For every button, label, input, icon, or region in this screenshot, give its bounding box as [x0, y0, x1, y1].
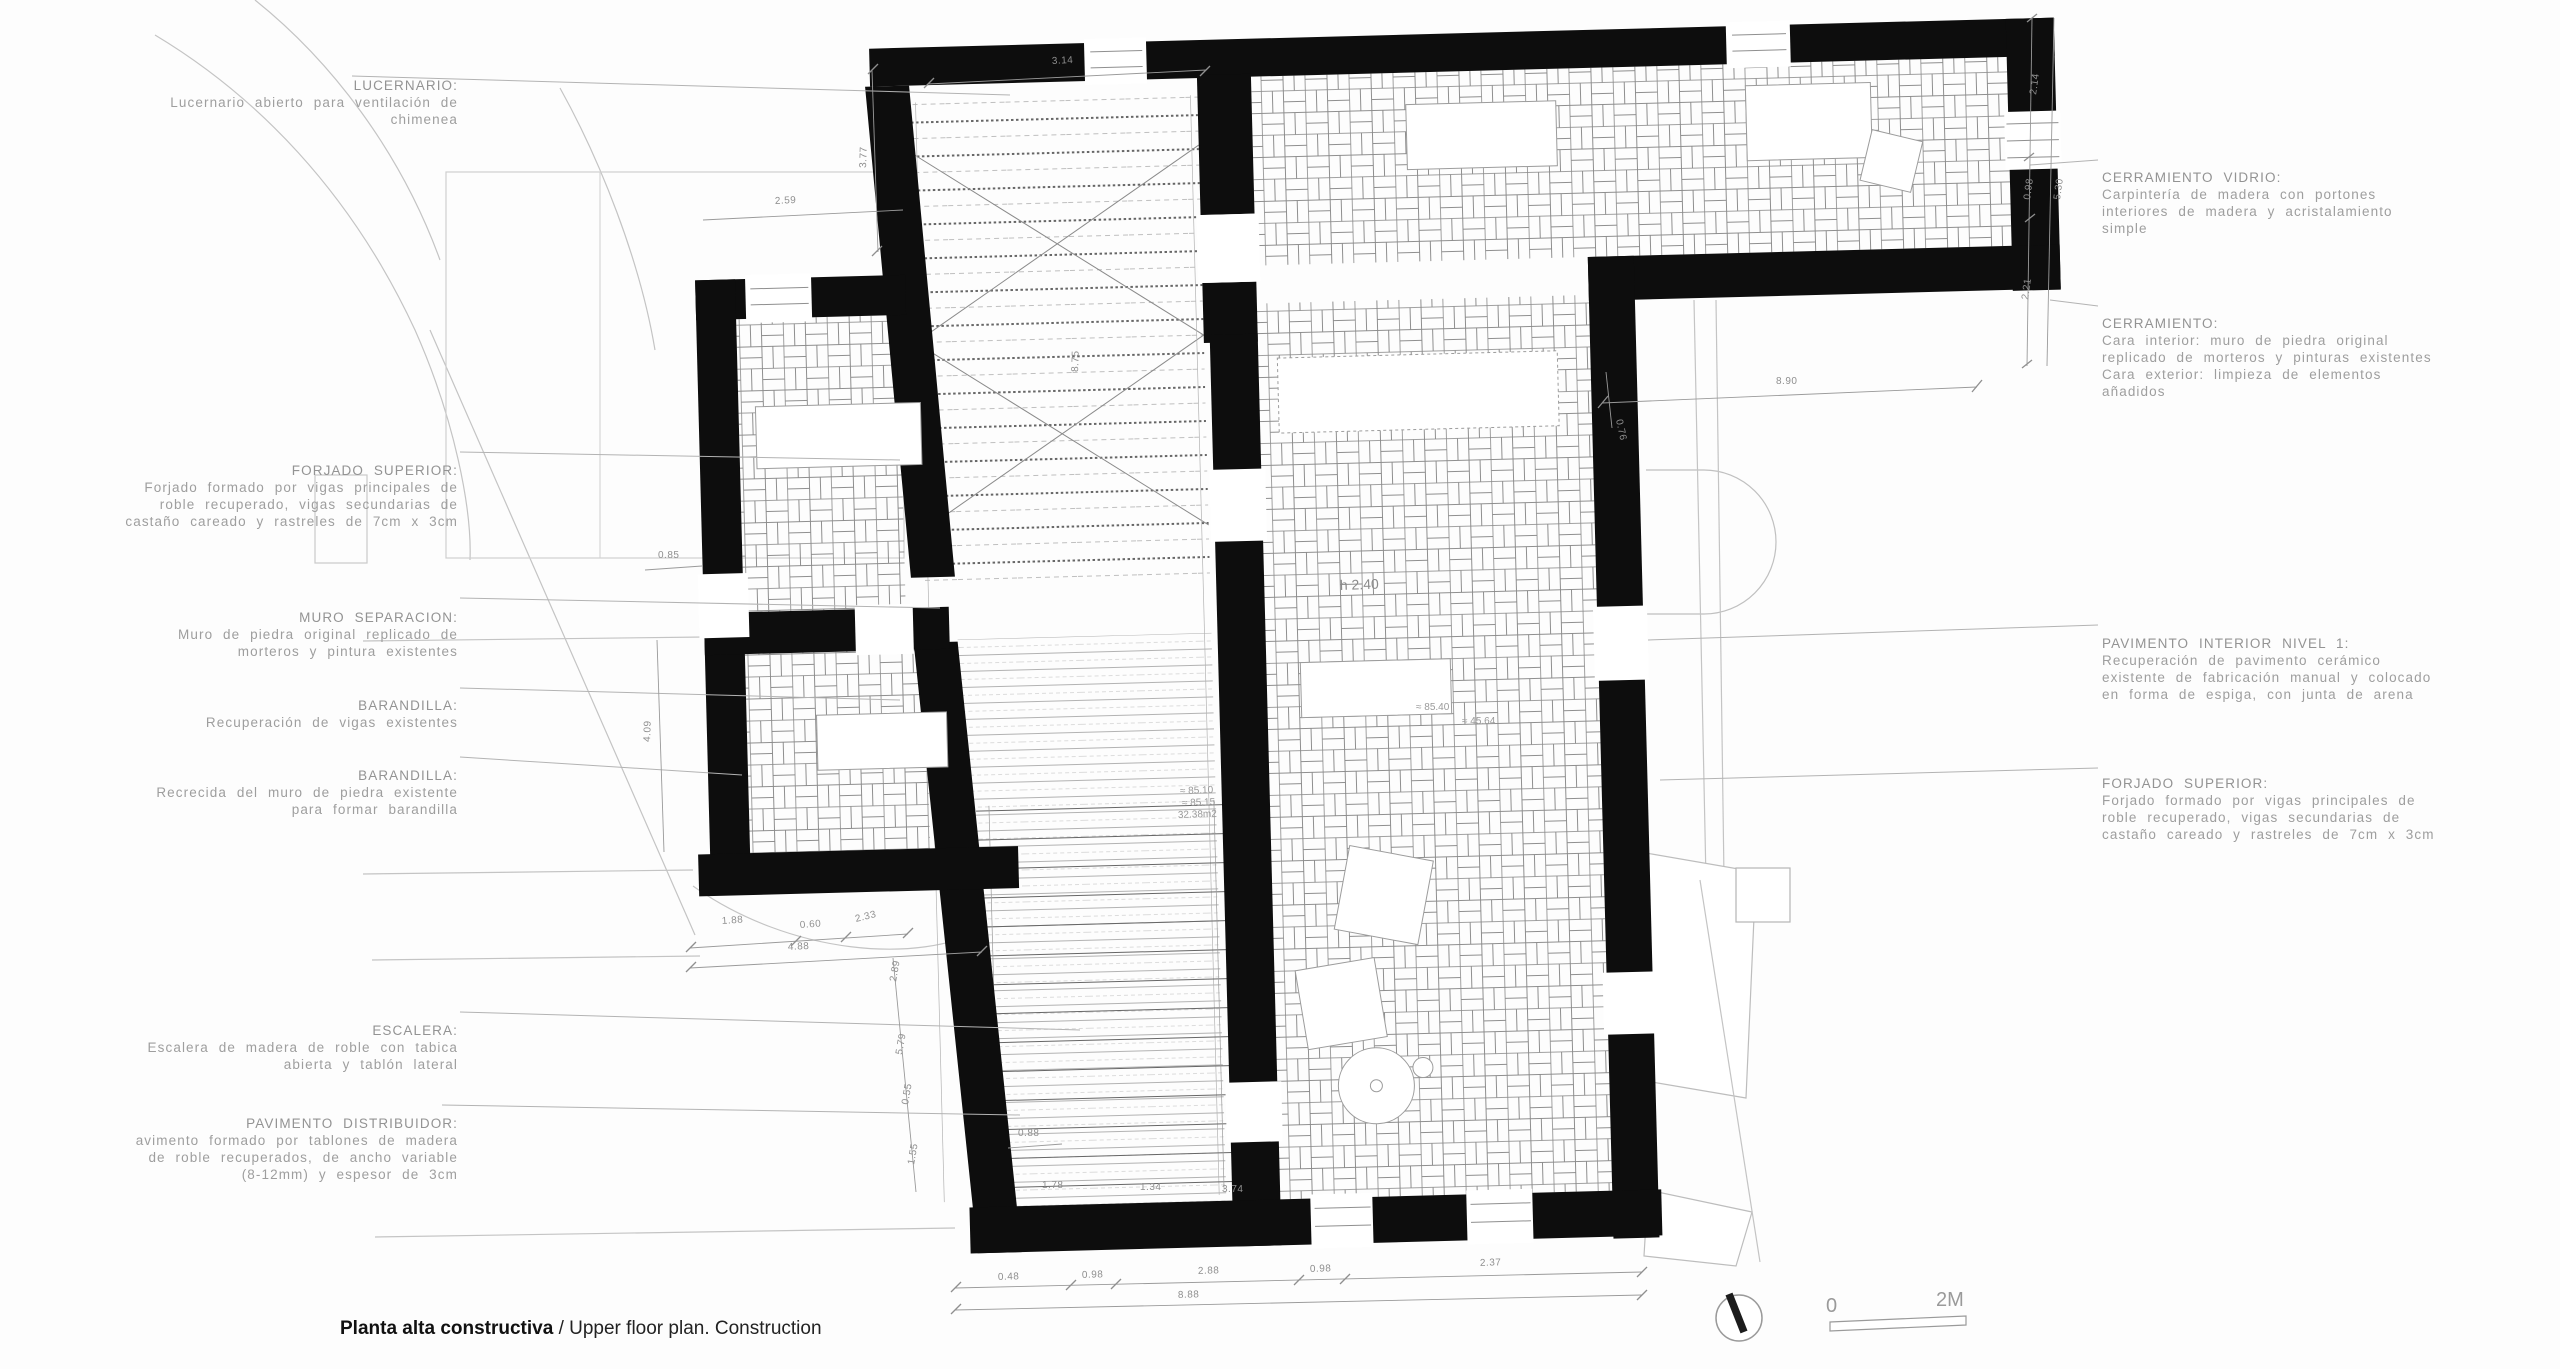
north-arrow-icon [1716, 1294, 1762, 1341]
dim-bc3: 2.88 [1198, 1265, 1220, 1277]
dim-stair-total: 4.88 [788, 941, 810, 953]
annotation-body: avimento formado por tablones de madera … [136, 1133, 458, 1182]
dim-rv-total: 5.30 [2052, 178, 2066, 201]
level-1a: ≈ 85.40 [1416, 702, 1450, 713]
dim-b2: 1.34 [1140, 1182, 1161, 1193]
dim-stair-b: 0.60 [799, 919, 821, 931]
annotation-title: FORJADO SUPERIOR: [13, 462, 458, 479]
upper-floor-plan-sheet: 3.14 3.77 2.59 0.85 4.09 1.88 0.60 2.33 … [0, 0, 2560, 1369]
dim-sv3: 0.55 [900, 1082, 915, 1105]
annotation-title: CERRAMIENTO VIDRIO: [2102, 169, 2522, 186]
dim-left-v2: 4.09 [642, 720, 654, 742]
floor-plan [677, 14, 2089, 1265]
caption-bold: Planta alta constructiva [340, 1318, 553, 1339]
dim-bc4: 0.98 [1310, 1263, 1332, 1275]
dim-sv2: 5.79 [894, 1032, 909, 1055]
annotation-title: BARANDILLA: [48, 767, 458, 784]
wall-left-rooms-bottom [698, 846, 1019, 896]
dim-stair-a: 1.88 [721, 915, 743, 927]
annotation-muro-separacion: MURO SEPARACION:Muro de piedra original … [58, 592, 458, 660]
dim-bc2: 0.98 [1082, 1269, 1104, 1281]
annotation-lucernario: LUCERNARIO:Lucernario abierto para venti… [38, 60, 458, 128]
sheet-caption: Planta alta constructiva / Upper floor p… [340, 1318, 822, 1340]
dim-b3: 3.74 [1222, 1184, 1243, 1195]
annotation-body: Carpintería de madera con portones inter… [2102, 187, 2393, 236]
annotation-body: Forjado formado por vigas principales de… [125, 480, 458, 529]
caption-regular: / Upper floor plan. Construction [553, 1318, 821, 1339]
annotation-escalera: ESCALERA:Escalera de madera de roble con… [43, 1005, 458, 1073]
wall-shaft-right-lower [1202, 282, 1258, 343]
annotation-body: Muro de piedra original replicado de mor… [178, 627, 458, 659]
annotation-cerramiento-vidrio: CERRAMIENTO VIDRIO:Carpintería de madera… [2102, 152, 2522, 237]
annotation-body: Lucernario abierto para ventilación de c… [170, 95, 458, 127]
annotation-pavimento-interior: PAVIMENTO INTERIOR NIVEL 1:Recuperación … [2102, 618, 2552, 703]
annotation-body: Recrecida del muro de piedra existente p… [156, 785, 458, 817]
annotation-barandilla-1: BARANDILLA:Recuperación de vigas existen… [63, 680, 458, 731]
annotation-title: BARANDILLA: [63, 697, 458, 714]
dim-bc1: 0.48 [998, 1271, 1020, 1283]
scale-bar: 0 2M [1826, 1289, 1966, 1331]
level-2a: ≈ 85.10 [1180, 785, 1214, 797]
annotation-body: Escalera de madera de roble con tabica a… [148, 1040, 458, 1072]
wall-shaft-right-upper [1197, 74, 1255, 215]
dim-shaft-v: 8.75 [1070, 350, 1082, 372]
annotation-pavimento-distribuidor: PAVIMENTO DISTRIBUIDOR:avimento formado … [3, 1098, 458, 1183]
dim-sv4: 1.55 [906, 1142, 921, 1165]
dim-left-v1: 3.77 [858, 146, 870, 168]
annotation-body: Recuperación de vigas existentes [206, 715, 458, 730]
annotation-title: PAVIMENTO INTERIOR NIVEL 1: [2102, 635, 2552, 652]
dim-rv3: 2.21 [2020, 278, 2034, 301]
level-2c: 32.38m2 [1178, 809, 1218, 821]
annotation-title: LUCERNARIO: [38, 77, 458, 94]
annotation-barandilla-2: BARANDILLA:Recrecida del muro de piedra … [48, 750, 458, 818]
level-1b: ≈ 45.64 [1462, 716, 1496, 727]
annotation-body: Forjado formado por vigas principales de… [2102, 793, 2435, 842]
level-2b: ≈ 85.15 [1182, 797, 1216, 809]
dim-088: 0.88 [1018, 1128, 1039, 1139]
dim-b1: 1.78 [1042, 1180, 1063, 1191]
annotation-title: ESCALERA: [43, 1022, 458, 1039]
annotation-body: Cara interior: muro de piedra original r… [2102, 333, 2432, 399]
annotation-cerramiento: CERRAMIENTO:Cara interior: muro de piedr… [2102, 298, 2560, 400]
room-height-label: h 2.40 [1340, 576, 1380, 593]
dim-left-h2: 0.85 [658, 550, 679, 561]
annotation-forjado-superior-left: FORJADO SUPERIOR:Forjado formado por vig… [13, 445, 458, 530]
annotation-title: PAVIMENTO DISTRIBUIDOR: [3, 1115, 458, 1132]
annotation-forjado-superior-right: FORJADO SUPERIOR:Forjado formado por vig… [2102, 758, 2552, 843]
annotation-title: CERRAMIENTO: [2102, 315, 2560, 332]
annotation-title: FORJADO SUPERIOR: [2102, 775, 2552, 792]
scale-zero-label: 0 [1826, 1295, 1837, 1317]
annotation-body: Recuperación de pavimento cerámico exist… [2102, 653, 2431, 702]
annotation-title: MURO SEPARACION: [58, 609, 458, 626]
dim-left-h1: 2.59 [775, 195, 797, 207]
dim-sv1: 2.89 [888, 959, 903, 982]
scale-2m-label: 2M [1936, 1289, 1964, 1311]
dim-top-width: 3.14 [1052, 55, 1074, 67]
dim-bc5: 2.37 [1480, 1257, 1502, 1269]
dim-right-h: 8.90 [1776, 376, 1797, 387]
dim-stair-c: 2.33 [854, 909, 877, 925]
dim-bc-total: 8.88 [1178, 1289, 1200, 1301]
